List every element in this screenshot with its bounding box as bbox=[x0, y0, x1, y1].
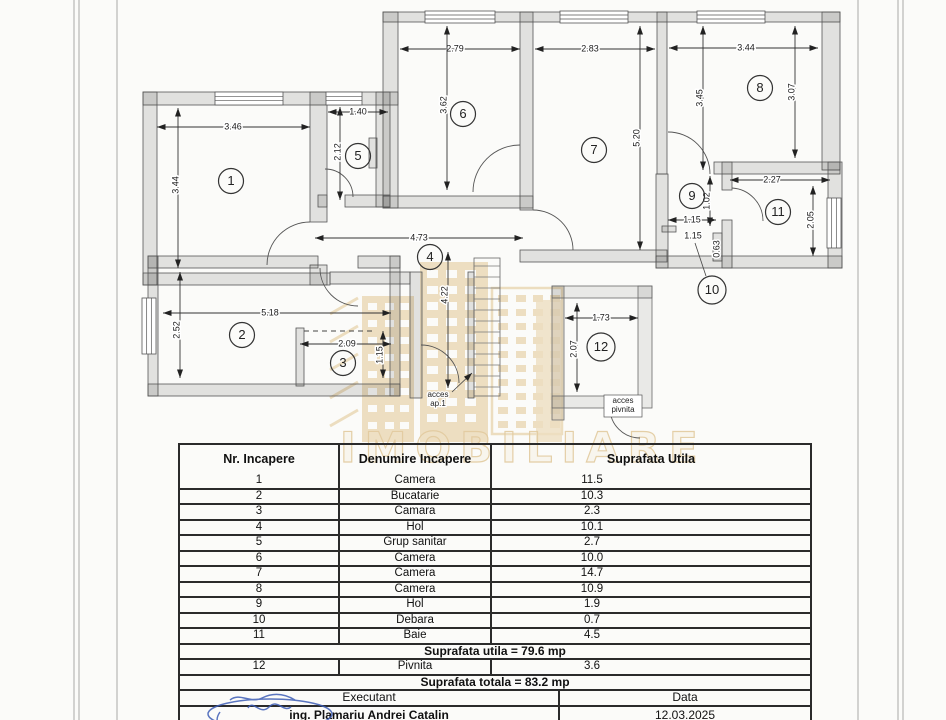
svg-text:ap.1: ap.1 bbox=[430, 399, 446, 408]
cell-nr: 7 bbox=[180, 567, 338, 581]
room-number: 8 bbox=[756, 80, 763, 95]
dimension: 2.79 bbox=[400, 43, 520, 53]
cell-area: 11.5 bbox=[490, 474, 810, 488]
table-row: 3Camara2.3 bbox=[180, 503, 810, 519]
wall bbox=[662, 226, 676, 232]
svg-text:acces: acces bbox=[613, 396, 634, 405]
wall bbox=[148, 384, 400, 396]
wall bbox=[410, 272, 422, 398]
table-row: 1Camera11.5 bbox=[180, 474, 810, 488]
scanned-floorplan-page: IMOBILIARE bbox=[0, 0, 946, 720]
dimension: 1.15 bbox=[684, 230, 702, 240]
cell-area: 2.3 bbox=[490, 505, 810, 519]
cell-nr: 6 bbox=[180, 552, 338, 566]
cell-nr: 4 bbox=[180, 521, 338, 535]
dimension-label: 3.07 bbox=[786, 83, 796, 101]
cell-nr: 1 bbox=[180, 474, 338, 488]
cell-nr: 3 bbox=[180, 505, 338, 519]
dimension: 3.44 bbox=[669, 42, 818, 52]
window-icon bbox=[142, 298, 156, 354]
dimension-label: 0.63 bbox=[711, 240, 721, 258]
cell-area: 14.7 bbox=[490, 567, 810, 581]
cell-nr: 12 bbox=[180, 660, 338, 674]
dimension-label: 5.20 bbox=[631, 129, 641, 147]
dimension-label: 3.45 bbox=[694, 89, 704, 107]
window-icon bbox=[326, 92, 362, 105]
window-icon bbox=[697, 11, 765, 23]
dimension: 0.63 bbox=[711, 240, 721, 258]
table-row: 10Debara0.7 bbox=[180, 612, 810, 628]
dimension: 4.73 bbox=[315, 232, 523, 242]
table-row: 4Hol10.1 bbox=[180, 519, 810, 535]
cell-name: Baie bbox=[338, 629, 490, 643]
dimension-label: 1.73 bbox=[592, 312, 610, 322]
room-number: 4 bbox=[426, 249, 433, 264]
cell-name: Pivnita bbox=[338, 660, 490, 674]
cell-nr: 8 bbox=[180, 583, 338, 597]
dimension-label: 2.27 bbox=[763, 174, 781, 184]
table-row: 8Camera10.9 bbox=[180, 581, 810, 597]
dimension: 3.44 bbox=[170, 108, 180, 268]
wall bbox=[390, 256, 400, 396]
room-number: 3 bbox=[339, 355, 346, 370]
dimension-label: 3.62 bbox=[438, 96, 448, 114]
cell-area: 4.5 bbox=[490, 629, 810, 643]
window-icon bbox=[827, 198, 841, 248]
cell-area: 1.9 bbox=[490, 598, 810, 612]
dimension-label: 1.15 bbox=[684, 230, 702, 240]
wall bbox=[383, 196, 533, 208]
cell-name: Camera bbox=[338, 567, 490, 581]
cell-nr: 5 bbox=[180, 536, 338, 550]
wall bbox=[552, 286, 652, 298]
cell-area: 10.1 bbox=[490, 521, 810, 535]
dimension-label: 2.12 bbox=[332, 143, 342, 161]
dimension-label: 5.18 bbox=[261, 307, 279, 317]
wall bbox=[822, 12, 840, 170]
room-number: 9 bbox=[688, 188, 695, 203]
window-icon bbox=[215, 92, 283, 105]
apartment-walls bbox=[143, 12, 842, 398]
dimension-label: 2.83 bbox=[581, 43, 599, 53]
total-row: Suprafata totala = 83.2 mp bbox=[180, 674, 810, 690]
room-circle: 1 bbox=[219, 169, 244, 194]
cell-nr: 9 bbox=[180, 598, 338, 612]
cell-area: 0.7 bbox=[490, 614, 810, 628]
room-number: 5 bbox=[354, 148, 361, 163]
dimension-label: 2.52 bbox=[171, 321, 181, 339]
table-row: 2Bucatarie10.3 bbox=[180, 488, 810, 504]
dimension-label: 1.15 bbox=[374, 346, 384, 364]
cell-name: Camera bbox=[338, 552, 490, 566]
cell-nr: 2 bbox=[180, 490, 338, 504]
wall bbox=[552, 396, 610, 408]
dimension-label: 1.40 bbox=[349, 106, 367, 116]
cell-name: Grup sanitar bbox=[338, 536, 490, 550]
table-row-pivnita: 12 Pivnita 3.6 bbox=[180, 658, 810, 674]
cell-name: Hol bbox=[338, 521, 490, 535]
windows bbox=[142, 11, 841, 354]
wall bbox=[468, 272, 474, 398]
wall bbox=[296, 328, 304, 386]
wall bbox=[345, 195, 390, 207]
room-circle: 8 bbox=[748, 76, 773, 101]
room-circle: 3 bbox=[331, 351, 356, 376]
dimension: 1.73 bbox=[565, 312, 638, 322]
stairwell bbox=[474, 258, 500, 396]
dimension: 2.52 bbox=[171, 272, 181, 378]
room-circle: 12 bbox=[587, 333, 615, 361]
table-row: 11Baie4.5 bbox=[180, 627, 810, 643]
dimension: 5.20 bbox=[631, 26, 641, 250]
wall bbox=[520, 250, 667, 262]
dimension: 4.22 bbox=[439, 252, 449, 388]
header-denumire: Denumire Incapere bbox=[338, 445, 490, 474]
dimension: 1.15 bbox=[374, 331, 384, 378]
dimension: 3.62 bbox=[438, 26, 448, 190]
acces-ap1-label: acces ap.1 bbox=[428, 390, 449, 408]
dimension: 5.18 bbox=[163, 307, 391, 317]
wall bbox=[714, 162, 840, 174]
cell-name: Debara bbox=[338, 614, 490, 628]
wall bbox=[638, 286, 652, 408]
dimension-label: 3.46 bbox=[224, 121, 242, 131]
dimension: 3.46 bbox=[157, 121, 310, 131]
room-circle: 2 bbox=[230, 323, 255, 348]
surface-table: Nr. Incapere Denumire Incapere Suprafata… bbox=[178, 443, 812, 720]
wall bbox=[143, 273, 330, 285]
dimension: 2.07 bbox=[568, 303, 578, 392]
dimension: 2.12 bbox=[332, 107, 342, 200]
subtotal-row: Suprafata utila = 79.6 mp bbox=[180, 643, 810, 659]
cell-name: Camara bbox=[338, 505, 490, 519]
room-circle: 4 bbox=[418, 245, 443, 270]
svg-text:pivnita: pivnita bbox=[611, 405, 635, 414]
date-value: 12.03.2025 bbox=[558, 707, 810, 720]
table-row: 7Camera14.7 bbox=[180, 565, 810, 581]
wall bbox=[318, 195, 327, 207]
room-circle: 10 bbox=[698, 276, 726, 304]
dimension: 3.07 bbox=[786, 26, 796, 158]
dimension-label: 2.09 bbox=[338, 338, 356, 348]
cell-area: 3.6 bbox=[490, 660, 810, 674]
wall bbox=[376, 92, 390, 207]
room-number: 12 bbox=[594, 339, 608, 354]
room-circle: 7 bbox=[582, 138, 607, 163]
dimension: 2.05 bbox=[805, 186, 815, 256]
dimension: 1.15 bbox=[668, 214, 716, 224]
room-number: 1 bbox=[227, 173, 234, 188]
room-circle: 6 bbox=[451, 102, 476, 127]
dimension-label: 3.44 bbox=[170, 176, 180, 194]
wall bbox=[656, 256, 842, 268]
dimension-label: 1.15 bbox=[683, 214, 701, 224]
data-label: Data bbox=[558, 691, 810, 705]
dimension-label: 2.07 bbox=[568, 340, 578, 358]
cell-name: Hol bbox=[338, 598, 490, 612]
wall bbox=[148, 256, 318, 268]
room-number: 11 bbox=[771, 204, 785, 219]
cell-area: 10.0 bbox=[490, 552, 810, 566]
dimension-label: 2.05 bbox=[805, 211, 815, 229]
dimension: 2.27 bbox=[730, 174, 830, 184]
cell-area: 10.3 bbox=[490, 490, 810, 504]
wall bbox=[657, 12, 667, 174]
room-number: 10 bbox=[705, 282, 719, 297]
dimension-label: 3.44 bbox=[737, 42, 755, 52]
cell-area: 2.7 bbox=[490, 536, 810, 550]
room-number: 6 bbox=[459, 106, 466, 121]
cell-nr: 11 bbox=[180, 629, 338, 643]
dimension-label: 2.79 bbox=[446, 43, 464, 53]
wall bbox=[520, 12, 533, 210]
wall bbox=[722, 162, 732, 190]
dimension-label: 4.73 bbox=[410, 232, 428, 242]
table-row: 9Hol1.9 bbox=[180, 596, 810, 612]
room-number: 2 bbox=[238, 327, 245, 342]
table-header-row: Nr. Incapere Denumire Incapere Suprafata… bbox=[180, 445, 810, 474]
room-circle: 11 bbox=[766, 200, 791, 225]
window-icon bbox=[425, 11, 495, 23]
signature bbox=[190, 690, 370, 720]
cell-name: Camera bbox=[338, 583, 490, 597]
dimension-label: 4.22 bbox=[439, 286, 449, 304]
room-number: 7 bbox=[590, 142, 597, 157]
floor-plan-drawing: 3.463.441.402.122.793.622.835.203.443.45… bbox=[0, 0, 946, 443]
dimension: 2.83 bbox=[535, 43, 655, 53]
room-circle: 5 bbox=[346, 144, 371, 169]
cell-area: 10.9 bbox=[490, 583, 810, 597]
cell-nr: 10 bbox=[180, 614, 338, 628]
table-row: 5Grup sanitar2.7 bbox=[180, 534, 810, 550]
window-icon bbox=[560, 11, 628, 23]
cell-name: Camera bbox=[338, 474, 490, 488]
svg-text:acces: acces bbox=[428, 390, 449, 399]
table-row: 6Camera10.0 bbox=[180, 550, 810, 566]
cell-name: Bucatarie bbox=[338, 490, 490, 504]
header-nr: Nr. Incapere bbox=[180, 445, 338, 474]
header-suprafata: Suprafata Utila bbox=[490, 445, 810, 474]
acces-pivnita-label: acces pivnita bbox=[604, 395, 642, 417]
